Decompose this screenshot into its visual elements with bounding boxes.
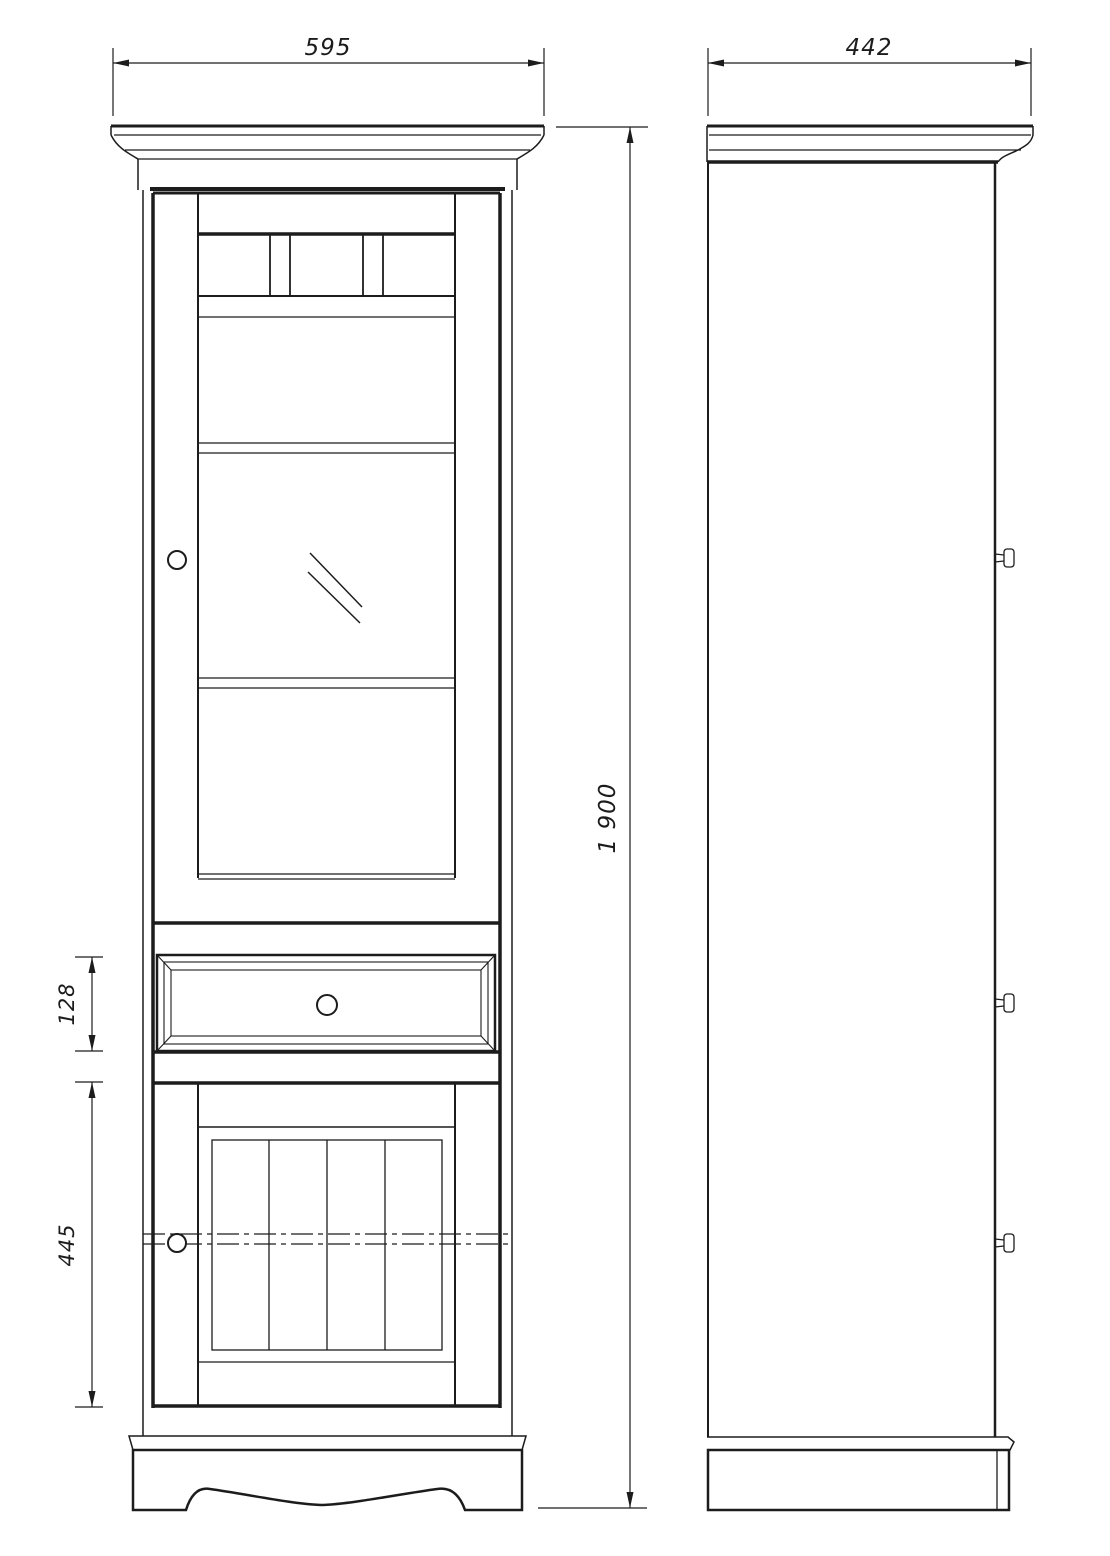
crown-molding-side [707, 126, 1033, 162]
crown-right-ogee [517, 135, 544, 159]
knob-stem [995, 554, 1004, 562]
arrowhead-bottom [89, 1391, 96, 1407]
cabinet-technical-drawing: 595 442 1 900 128 [0, 0, 1110, 1556]
dimension-width-value: 595 [305, 35, 352, 61]
arrowhead-left [708, 60, 724, 67]
arrowhead-top [89, 1082, 96, 1098]
crown-left-ogee [111, 135, 138, 159]
dimension-width: 595 [113, 35, 544, 116]
dimension-height: 1 900 [538, 127, 648, 1508]
drawer-knob-profile [995, 994, 1014, 1012]
plinth-front [129, 1436, 526, 1510]
dimension-depth: 442 [708, 35, 1031, 116]
dimension-drawer-height-value: 128 [55, 982, 79, 1025]
upper-door-knob-profile [995, 549, 1014, 567]
side-plinth-ledge [707, 1437, 1014, 1450]
knob-cap [1004, 549, 1014, 567]
lower-door-knob-profile [995, 1234, 1014, 1252]
arrowhead-top [627, 127, 634, 143]
plinth-side [707, 1437, 1014, 1510]
upper-glass-door [153, 193, 500, 923]
arrowhead-right [528, 60, 544, 67]
arrowhead-left [113, 60, 129, 67]
arrowhead-bottom [627, 1492, 634, 1508]
plinth-ledge [129, 1436, 526, 1450]
arrowhead-right [1015, 60, 1031, 67]
lower-panel-door [143, 1083, 512, 1406]
drawer [153, 955, 500, 1052]
side-plinth-board [708, 1450, 1009, 1510]
lower-door-knob [168, 1234, 186, 1252]
knob-stem [995, 1239, 1004, 1247]
dimension-height-value: 1 900 [595, 783, 621, 854]
dimensions: 595 442 1 900 128 [55, 35, 1031, 1508]
dimension-drawer-height: 128 [55, 957, 103, 1051]
knob-cap [1004, 1234, 1014, 1252]
dimension-lower-door-height-value: 445 [55, 1223, 79, 1266]
dimension-depth-value: 442 [846, 35, 893, 61]
arrowhead-top [89, 957, 96, 973]
drawing-canvas: 595 442 1 900 128 [0, 0, 1110, 1556]
side-view [707, 126, 1033, 1510]
side-panel [708, 162, 995, 1437]
dimension-lower-door-height: 445 [55, 1082, 103, 1407]
upper-door-knob [168, 551, 186, 569]
arrowhead-bottom [89, 1035, 96, 1051]
knob-cap [1004, 994, 1014, 1012]
plinth-board [133, 1450, 522, 1510]
drawer-knob [317, 995, 337, 1015]
front-view [111, 126, 544, 1510]
side-crown-ogee [998, 126, 1033, 162]
knob-stem [995, 999, 1004, 1007]
crown-molding-front [111, 126, 544, 190]
